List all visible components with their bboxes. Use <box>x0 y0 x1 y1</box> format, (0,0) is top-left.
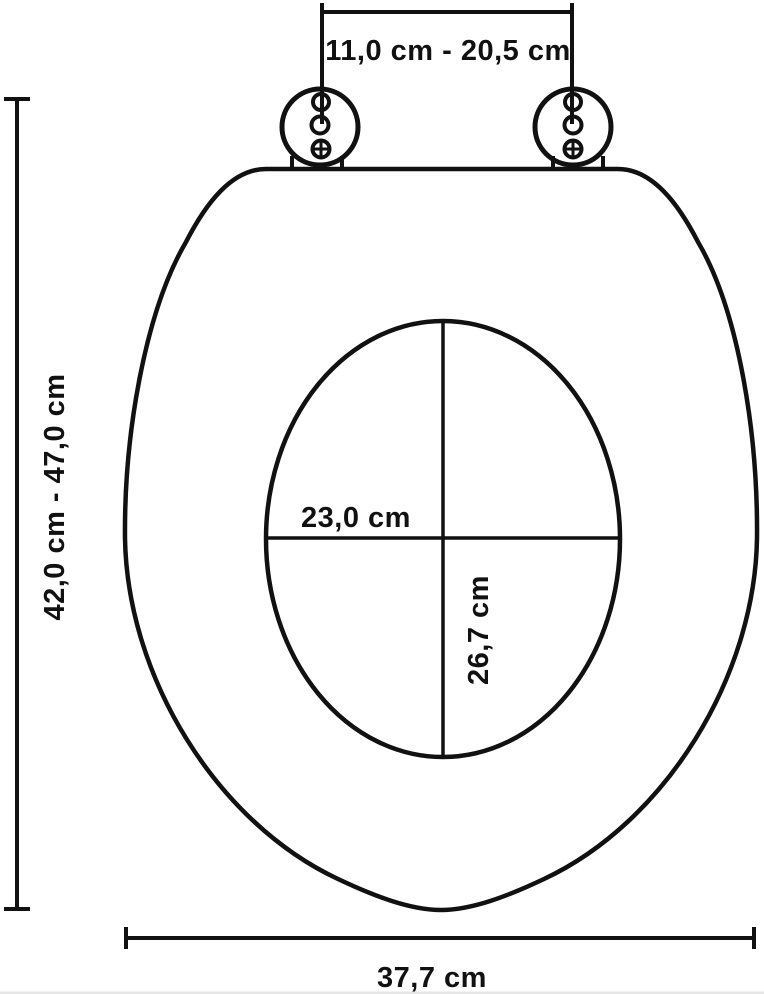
opening-width-label: 23,0 cm <box>301 502 411 534</box>
overall-length-label: 42,0 cm - 47,0 cm <box>39 373 71 620</box>
hinge-spacing-label: 11,0 cm - 20,5 cm <box>325 35 571 67</box>
diagram-canvas: 11,0 cm - 20,5 cm 42,0 cm - 47,0 cm 23,0… <box>0 0 764 994</box>
overall-length-dimension <box>4 99 30 909</box>
opening-length-label: 26,7 cm <box>463 575 495 685</box>
toilet-seat-dimension-diagram: 11,0 cm - 20,5 cm 42,0 cm - 47,0 cm 23,0… <box>0 0 764 994</box>
overall-width-dimension <box>125 927 755 949</box>
overall-width-label: 37,7 cm <box>377 962 487 994</box>
